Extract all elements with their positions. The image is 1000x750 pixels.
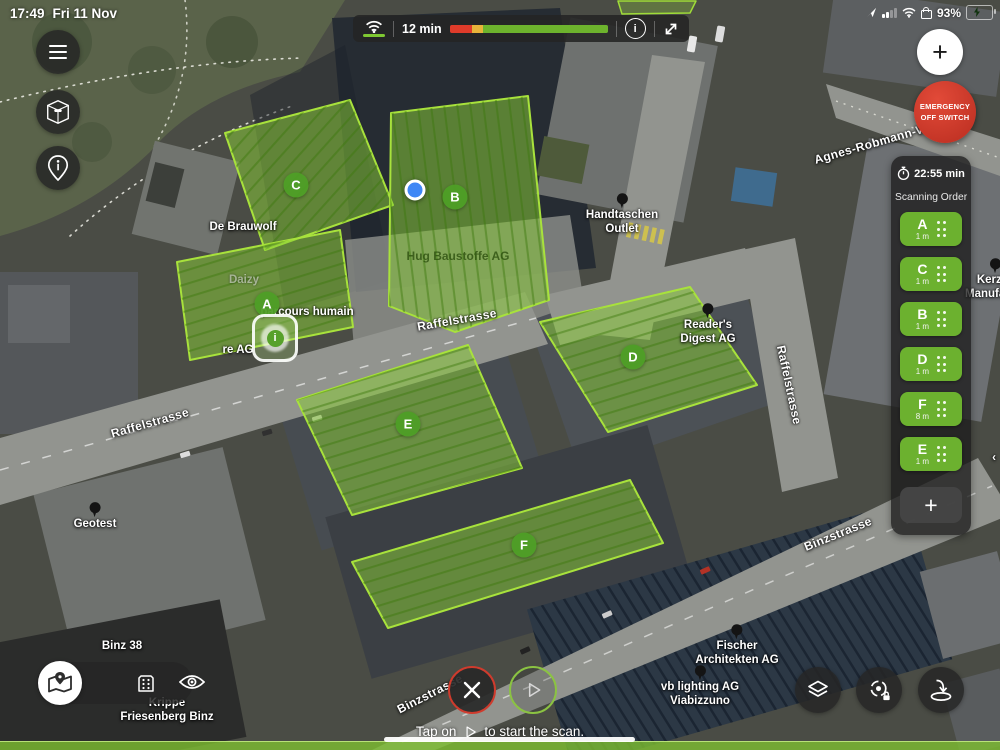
- battery-seg-yellow: [472, 25, 483, 33]
- system-status-right: 93%: [866, 5, 993, 20]
- emergency-line2: OFF SWITCH: [921, 112, 970, 123]
- drone-battery-bar: [450, 25, 608, 33]
- stopwatch-icon: [897, 166, 910, 181]
- scan-item-letter: A: [917, 217, 927, 231]
- add-scan-area-button[interactable]: +: [900, 487, 962, 523]
- scan-item-info: F 8 m: [916, 397, 929, 421]
- info-icon: i: [267, 330, 284, 347]
- divider: [616, 21, 617, 37]
- poi-info-button[interactable]: [36, 146, 80, 190]
- scan-area-item-B[interactable]: B 1 m: [900, 302, 962, 336]
- drag-handle-icon[interactable]: [937, 401, 946, 416]
- date: Fri 11 Nov: [53, 6, 118, 21]
- drag-handle-icon[interactable]: [937, 446, 946, 461]
- view-mode-toolbar: [37, 662, 193, 704]
- map-pin-view-icon: [47, 671, 73, 695]
- flight-time-remaining: 12 min: [402, 22, 442, 36]
- clock: 17:49: [10, 6, 45, 21]
- cancel-mission-button[interactable]: [448, 666, 496, 714]
- crosshair-lock-icon: [866, 677, 893, 704]
- drag-handle-icon[interactable]: [937, 311, 946, 326]
- wifi-icon: [902, 7, 916, 18]
- scan-item-gsd: 1 m: [916, 233, 929, 241]
- mission-eta-value: 22:55 min: [914, 168, 965, 180]
- scan-item-gsd: 8 m: [916, 413, 929, 421]
- bottom-scan-strip: [0, 741, 1000, 750]
- location-arrow-icon: [866, 7, 877, 18]
- layers-icon: [806, 678, 830, 702]
- battery-seg-red: [450, 25, 472, 33]
- info-pin-icon: [46, 154, 70, 182]
- emergency-line1: EMERGENCY: [920, 101, 970, 112]
- emergency-off-switch[interactable]: EMERGENCY OFF SWITCH: [914, 81, 976, 143]
- scan-order-list: A 1 m C 1 m B 1 m D 1 m F: [895, 212, 967, 471]
- scan-area-fragment[interactable]: [618, 1, 696, 14]
- battery-seg-green: [483, 25, 608, 33]
- ipad-battery-icon: [966, 5, 993, 20]
- scan-item-gsd: 1 m: [916, 458, 929, 466]
- scan-item-info: A 1 m: [916, 217, 929, 241]
- system-status-left: 17:49 Fri 11 Nov: [10, 6, 117, 21]
- scan-item-letter: D: [917, 352, 927, 366]
- hamburger-icon: [49, 45, 67, 59]
- center-map-lock-button[interactable]: [856, 667, 902, 713]
- 3d-view-button[interactable]: [36, 90, 80, 134]
- battery-tip: [994, 9, 996, 14]
- lock-icon: [921, 10, 932, 19]
- eye-icon: [179, 672, 205, 692]
- ipad-battery-percent: 93%: [937, 6, 961, 20]
- scan-item-info: C 1 m: [916, 262, 929, 286]
- cellular-signal-icon: [882, 8, 897, 18]
- scan-item-gsd: 1 m: [916, 323, 929, 331]
- scan-area-item-A[interactable]: A 1 m: [900, 212, 962, 246]
- add-button[interactable]: +: [917, 29, 963, 75]
- map-view-button[interactable]: [38, 661, 82, 705]
- scan-item-letter: C: [917, 262, 927, 276]
- scan-area-item-D[interactable]: D 1 m: [900, 347, 962, 381]
- controller-link-icon: [363, 20, 385, 37]
- scan-item-letter: F: [918, 397, 927, 411]
- scan-area-item-C[interactable]: C 1 m: [900, 257, 962, 291]
- layers-button[interactable]: [795, 667, 841, 713]
- area-info-widget[interactable]: i: [252, 314, 298, 362]
- expand-icon[interactable]: [663, 21, 679, 37]
- divider: [393, 21, 394, 37]
- scanning-order-panel: 22:55 min Scanning Order A 1 m C 1 m B 1…: [891, 156, 971, 535]
- menu-button[interactable]: [36, 30, 80, 74]
- scan-area-item-F[interactable]: F 8 m: [900, 392, 962, 426]
- charging-bolt-icon: [973, 7, 981, 17]
- drone-status-panel: 12 min i: [353, 15, 689, 42]
- link-ok-indicator: [363, 34, 385, 37]
- building-icon: [135, 672, 157, 694]
- land-icon: [927, 678, 955, 702]
- scan-item-letter: E: [918, 442, 927, 456]
- scan-item-letter: B: [917, 307, 927, 321]
- visibility-button[interactable]: [179, 672, 205, 697]
- scan-item-info: D 1 m: [916, 352, 929, 376]
- user-location-dot: [405, 180, 426, 201]
- drone-scan-app: Agnes-Robmann-WegHandtaschenOutletReader…: [0, 0, 1000, 750]
- scan-item-gsd: 1 m: [916, 278, 929, 286]
- mission-eta: 22:55 min: [895, 166, 967, 181]
- drag-handle-icon[interactable]: [937, 356, 946, 371]
- prism-icon: [44, 98, 72, 126]
- scan-item-gsd: 1 m: [916, 368, 929, 376]
- divider: [654, 21, 655, 37]
- close-icon: [461, 679, 483, 701]
- satellite-map[interactable]: [0, 0, 1000, 750]
- scan-item-info: E 1 m: [916, 442, 929, 466]
- play-icon: [523, 680, 543, 700]
- home-indicator[interactable]: [384, 737, 635, 742]
- scan-item-info: B 1 m: [916, 307, 929, 331]
- start-scan-button[interactable]: [509, 666, 557, 714]
- scan-area-B[interactable]: [389, 96, 549, 332]
- land-drone-button[interactable]: [918, 667, 964, 713]
- scanning-order-title: Scanning Order: [895, 192, 967, 203]
- drone-info-button[interactable]: i: [625, 18, 646, 39]
- scan-area-item-E[interactable]: E 1 m: [900, 437, 962, 471]
- drag-handle-icon[interactable]: [937, 266, 946, 281]
- drag-handle-icon[interactable]: [937, 221, 946, 236]
- buildings-view-button[interactable]: [135, 672, 157, 699]
